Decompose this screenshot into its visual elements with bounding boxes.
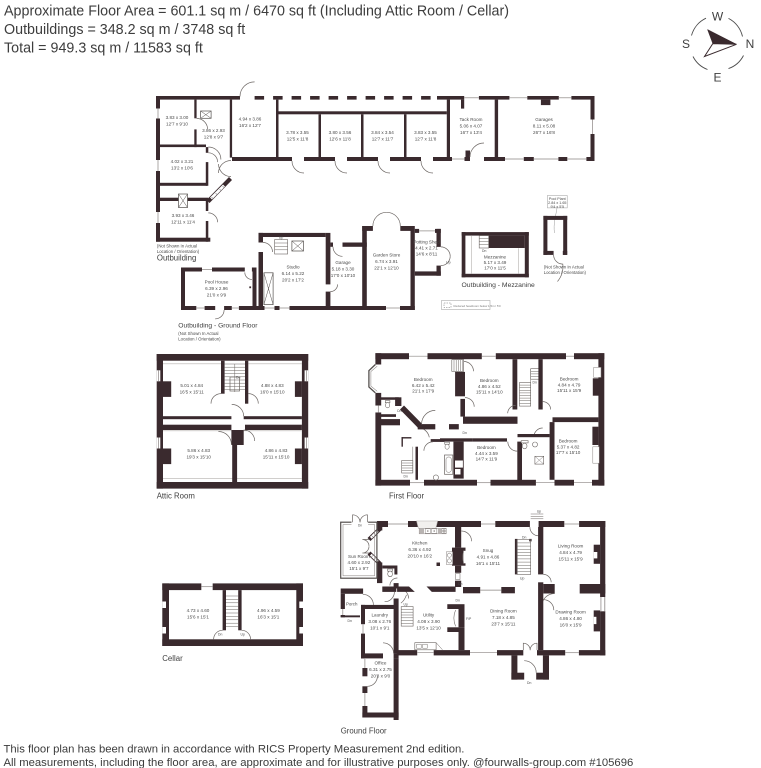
svg-text:(Not Shown In Actual: (Not Shown In Actual <box>157 243 197 248</box>
svg-text:4.08 x 3.90: 4.08 x 3.90 <box>417 619 440 624</box>
svg-text:Bedroom: Bedroom <box>480 378 499 383</box>
svg-text:15'11 x 15'10: 15'11 x 15'10 <box>263 455 290 460</box>
svg-text:14'6 x 8'11: 14'6 x 8'11 <box>416 252 438 257</box>
svg-text:16'2 x 12'7: 16'2 x 12'7 <box>239 123 261 128</box>
svg-text:5.06 x 4.07: 5.06 x 4.07 <box>460 124 483 129</box>
svg-text:Drawing Room: Drawing Room <box>555 610 586 615</box>
svg-text:Dn: Dn <box>458 582 462 586</box>
svg-text:13'2 x 10'6: 13'2 x 10'6 <box>171 166 193 171</box>
svg-text:23'7 x 15'11: 23'7 x 15'11 <box>491 622 516 627</box>
svg-text:Up: Up <box>279 236 284 240</box>
svg-text:6.39 x 2.96: 6.39 x 2.96 <box>205 286 228 291</box>
svg-text:This floor plan has been drawn: This floor plan has been drawn in accord… <box>4 744 465 756</box>
svg-text:Studio: Studio <box>286 265 299 270</box>
svg-text:4.60 x 2.92: 4.60 x 2.92 <box>348 560 371 565</box>
svg-text:16'0 x 15'10: 16'0 x 15'10 <box>260 390 285 395</box>
svg-text:4.41 x 2.71: 4.41 x 2.71 <box>415 246 438 251</box>
svg-text:4.84 x 4.79: 4.84 x 4.79 <box>559 550 582 555</box>
svg-text:15'11 x 15'9: 15'11 x 15'9 <box>557 388 582 393</box>
svg-text:Up: Up <box>446 261 451 265</box>
svg-text:Up: Up <box>537 510 541 514</box>
svg-text:Up: Up <box>404 603 408 607</box>
svg-text:Porch: Porch <box>346 602 358 607</box>
svg-text:Sun Room: Sun Room <box>348 554 370 559</box>
svg-text:14'7 x 11'9: 14'7 x 11'9 <box>476 457 498 462</box>
svg-text:5.18 x 3.30: 5.18 x 3.30 <box>332 267 355 272</box>
svg-text:15'11 x 14'10: 15'11 x 14'10 <box>476 390 503 395</box>
svg-text:3.86 x 2.93: 3.86 x 2.93 <box>202 128 225 133</box>
svg-text:13'5 x 12'10: 13'5 x 12'10 <box>416 626 441 631</box>
svg-text:Potting Shed: Potting Shed <box>413 240 440 245</box>
svg-text:4.73 x 4.60: 4.73 x 4.60 <box>187 608 210 613</box>
svg-text:5.86 x 4.83: 5.86 x 4.83 <box>187 448 210 453</box>
svg-text:12'7 x 11'8: 12'7 x 11'8 <box>415 137 437 142</box>
svg-text:Living Room: Living Room <box>558 544 584 549</box>
svg-text:3.08 x 2.76: 3.08 x 2.76 <box>368 619 391 624</box>
svg-text:6.31 x 2.75: 6.31 x 2.75 <box>369 667 392 672</box>
svg-text:4.88 x 4.83: 4.88 x 4.83 <box>261 383 284 388</box>
svg-text:S: S <box>682 37 690 51</box>
svg-text:5.37 x 4.82: 5.37 x 4.82 <box>557 444 580 449</box>
svg-text:20'10 x 16'2: 20'10 x 16'2 <box>408 554 433 559</box>
svg-text:6.42 x 5.42: 6.42 x 5.42 <box>412 383 435 388</box>
svg-text:6.36 x 4.92: 6.36 x 4.92 <box>408 547 431 552</box>
svg-text:4.02 x 3.21: 4.02 x 3.21 <box>171 159 194 164</box>
svg-text:8.11 x 5.08: 8.11 x 5.08 <box>533 124 556 129</box>
svg-text:12'5 x 11'8: 12'5 x 11'8 <box>287 137 309 142</box>
svg-text:Approximate Floor Area = 601.1: Approximate Floor Area = 601.1 sq m / 64… <box>4 3 509 19</box>
svg-text:Dn: Dn <box>527 681 531 685</box>
svg-text:Utility: Utility <box>423 613 435 618</box>
svg-text:15'11 x 15'9: 15'11 x 15'9 <box>559 557 584 562</box>
svg-text:4.86 x 4.83: 4.86 x 4.83 <box>265 448 288 453</box>
svg-text:3.80 x 3.56: 3.80 x 3.56 <box>329 130 352 135</box>
svg-text:Up: Up <box>241 633 245 637</box>
svg-text:Pool House: Pool House <box>205 280 229 285</box>
svg-text:Location / Orientation): Location / Orientation) <box>178 336 221 341</box>
svg-text:Laundry: Laundry <box>371 613 388 618</box>
svg-text:3.84 x 3.54: 3.84 x 3.54 <box>371 130 394 135</box>
svg-text:Tack Room: Tack Room <box>460 117 483 122</box>
svg-text:16'1 x 15'11: 16'1 x 15'11 <box>476 561 501 566</box>
svg-text:16'5 x 15'11: 16'5 x 15'11 <box>180 390 205 395</box>
svg-text:All measurements, including th: All measurements, including the floor ar… <box>4 757 634 768</box>
svg-text:20'8 x 9'0: 20'8 x 9'0 <box>371 674 391 679</box>
svg-text:16'7 x 13'4: 16'7 x 13'4 <box>460 130 482 135</box>
svg-text:Attic Room: Attic Room <box>157 492 195 501</box>
svg-text:17'0 x 11'5: 17'0 x 11'5 <box>484 266 506 271</box>
svg-text:16'3 x 15'1: 16'3 x 15'1 <box>257 615 279 620</box>
svg-text:Dn: Dn <box>404 475 408 479</box>
svg-text:3.83 x 3.55: 3.83 x 3.55 <box>414 130 437 135</box>
svg-text:Outbuilding: Outbuilding <box>157 254 196 263</box>
svg-text:Dn: Dn <box>358 523 362 527</box>
svg-text:(Not Shown In Actual: (Not Shown In Actual <box>178 331 218 336</box>
svg-text:Dn: Dn <box>236 376 240 380</box>
svg-text:4.94 x 3.86: 4.94 x 3.86 <box>239 117 262 122</box>
svg-text:26'7 x 16'8: 26'7 x 16'8 <box>533 130 555 135</box>
svg-text:4.86 x 4.52: 4.86 x 4.52 <box>478 384 501 389</box>
svg-text:Reduced headroom below 1.5m /: Reduced headroom below 1.5m / 5'0 <box>454 304 502 308</box>
svg-text:4.86 x 4.80: 4.86 x 4.80 <box>559 616 582 621</box>
svg-text:Outbuildings = 348.2 sq m / 37: Outbuildings = 348.2 sq m / 3748 sq ft <box>4 22 245 38</box>
svg-text:4.44 x 3.59: 4.44 x 3.59 <box>475 451 498 456</box>
svg-text:9'4 x 5'5: 9'4 x 5'5 <box>551 205 565 209</box>
svg-text:Bedroom: Bedroom <box>414 377 433 382</box>
svg-text:10'1 x 9'1: 10'1 x 9'1 <box>370 626 390 631</box>
svg-text:Office: Office <box>375 661 387 666</box>
svg-text:Ground Floor: Ground Floor <box>341 727 387 736</box>
svg-text:Total = 949.3 sq m / 11583 sq: Total = 949.3 sq m / 11583 sq ft <box>4 40 203 56</box>
svg-text:Location / Orientation): Location / Orientation) <box>544 270 587 275</box>
svg-text:Kitchen: Kitchen <box>412 541 428 546</box>
svg-text:Up: Up <box>520 577 524 581</box>
svg-text:Snug: Snug <box>483 548 494 553</box>
svg-text:Outbuilding - Ground Floor: Outbuilding - Ground Floor <box>178 323 258 330</box>
svg-text:20'2 x 17'2: 20'2 x 17'2 <box>282 278 304 283</box>
svg-text:Outbuilding - Mezzanine: Outbuilding - Mezzanine <box>462 282 536 289</box>
svg-text:3.93 x 3.46: 3.93 x 3.46 <box>172 213 195 218</box>
svg-text:F/P: F/P <box>466 617 472 621</box>
svg-text:5.17 x 3.49: 5.17 x 3.49 <box>484 260 507 265</box>
svg-text:First Floor: First Floor <box>389 492 424 501</box>
svg-text:4.91 x 4.86: 4.91 x 4.86 <box>477 555 500 560</box>
svg-text:16'0 x 15'9: 16'0 x 15'9 <box>560 623 582 628</box>
svg-text:4.84 x 4.79: 4.84 x 4.79 <box>558 382 581 387</box>
svg-text:17'0 x 10'10: 17'0 x 10'10 <box>331 273 356 278</box>
svg-text:Garage: Garage <box>335 260 351 265</box>
svg-text:Dn: Dn <box>348 619 352 623</box>
svg-text:12'7 x 11'7: 12'7 x 11'7 <box>372 137 394 142</box>
svg-text:17'7 x 15'10: 17'7 x 15'10 <box>556 450 581 455</box>
svg-text:Mezzanine: Mezzanine <box>484 255 507 260</box>
svg-text:Bedroom: Bedroom <box>560 377 579 382</box>
svg-text:Dn: Dn <box>218 633 222 637</box>
svg-text:Dining Room: Dining Room <box>490 609 517 614</box>
svg-text:6.74 x 3.91: 6.74 x 3.91 <box>375 259 398 264</box>
svg-text:5.01 x 4.84: 5.01 x 4.84 <box>180 383 203 388</box>
svg-text:7.18 x 4.85: 7.18 x 4.85 <box>492 615 515 620</box>
svg-text:Cellar: Cellar <box>162 654 183 663</box>
svg-text:12'7 x 9'10: 12'7 x 9'10 <box>166 122 188 127</box>
svg-text:15'1 x 9'7: 15'1 x 9'7 <box>349 566 369 571</box>
svg-text:N: N <box>746 37 755 51</box>
svg-text:21'0 x 9'9: 21'0 x 9'9 <box>207 293 227 298</box>
svg-text:12'6 x 11'8: 12'6 x 11'8 <box>329 137 351 142</box>
svg-text:Bedroom: Bedroom <box>559 439 578 444</box>
svg-text:15'6 x 15'1: 15'6 x 15'1 <box>187 615 209 620</box>
svg-text:12'8 x 9'7: 12'8 x 9'7 <box>204 135 224 140</box>
svg-text:(Not Shown In Actual: (Not Shown In Actual <box>544 265 584 270</box>
svg-text:3.83 x 3.00: 3.83 x 3.00 <box>166 115 189 120</box>
svg-text:Dn: Dn <box>482 249 486 253</box>
svg-text:E: E <box>713 71 721 85</box>
svg-text:W: W <box>712 10 724 24</box>
svg-text:3.78 x 3.55: 3.78 x 3.55 <box>286 130 309 135</box>
svg-text:Dn: Dn <box>463 431 467 435</box>
svg-text:Dn: Dn <box>533 381 537 385</box>
svg-text:Garden Store: Garden Store <box>373 253 401 258</box>
svg-text:12'11 x 11'4: 12'11 x 11'4 <box>171 220 195 225</box>
svg-text:Garages: Garages <box>535 117 553 122</box>
svg-text:Bedroom: Bedroom <box>477 445 496 450</box>
svg-text:22'1 x 12'10: 22'1 x 12'10 <box>374 266 399 271</box>
svg-text:6.14 x 5.22: 6.14 x 5.22 <box>282 271 305 276</box>
svg-text:Dn: Dn <box>522 536 526 540</box>
svg-text:4.96 x 4.59: 4.96 x 4.59 <box>257 608 280 613</box>
svg-text:19'3 x 15'10: 19'3 x 15'10 <box>186 455 211 460</box>
svg-text:21'1 x 17'9: 21'1 x 17'9 <box>412 389 434 394</box>
svg-text:Dn: Dn <box>456 599 460 603</box>
